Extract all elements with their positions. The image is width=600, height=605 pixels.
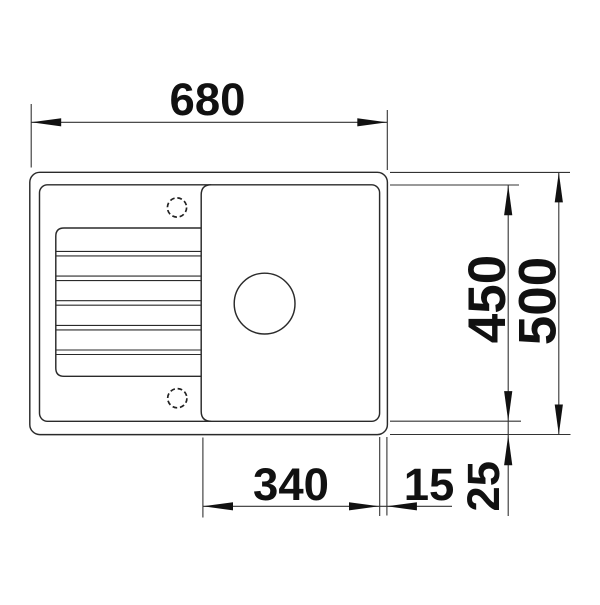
svg-text:15: 15 (404, 459, 455, 510)
svg-text:25: 25 (458, 461, 509, 512)
svg-text:500: 500 (509, 257, 568, 345)
svg-text:680: 680 (170, 74, 246, 125)
svg-text:340: 340 (253, 459, 329, 510)
